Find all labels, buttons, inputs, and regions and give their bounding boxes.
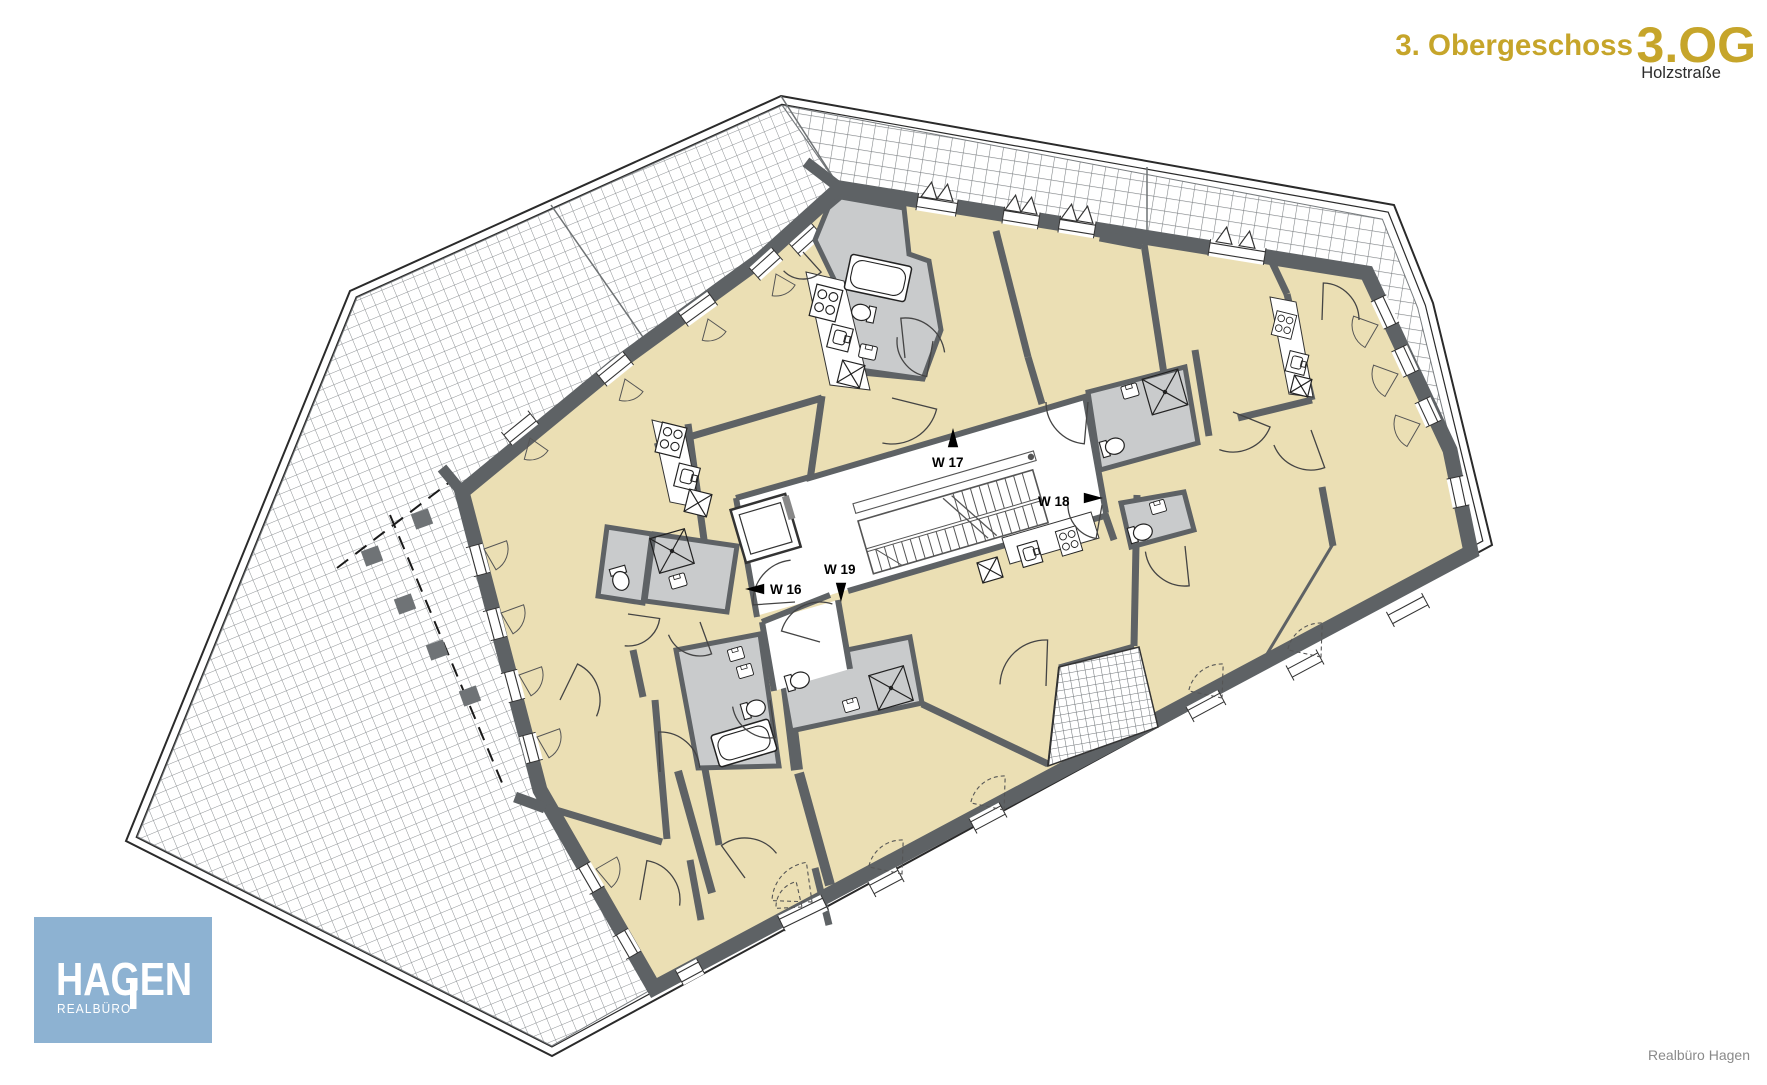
svg-text:3. Obergeschoss: 3. Obergeschoss [1395,29,1633,62]
svg-text:W 19: W 19 [824,562,856,577]
svg-text:Realbüro Hagen: Realbüro Hagen [1648,1047,1750,1063]
svg-text:W 16: W 16 [770,582,802,597]
svg-text:HAGEN: HAGEN [56,953,192,1004]
svg-text:REALBÜRO: REALBÜRO [57,1002,131,1016]
svg-text:W 17: W 17 [932,455,964,470]
svg-text:Holzstraße: Holzstraße [1641,64,1721,82]
svg-text:W 18: W 18 [1038,494,1070,509]
